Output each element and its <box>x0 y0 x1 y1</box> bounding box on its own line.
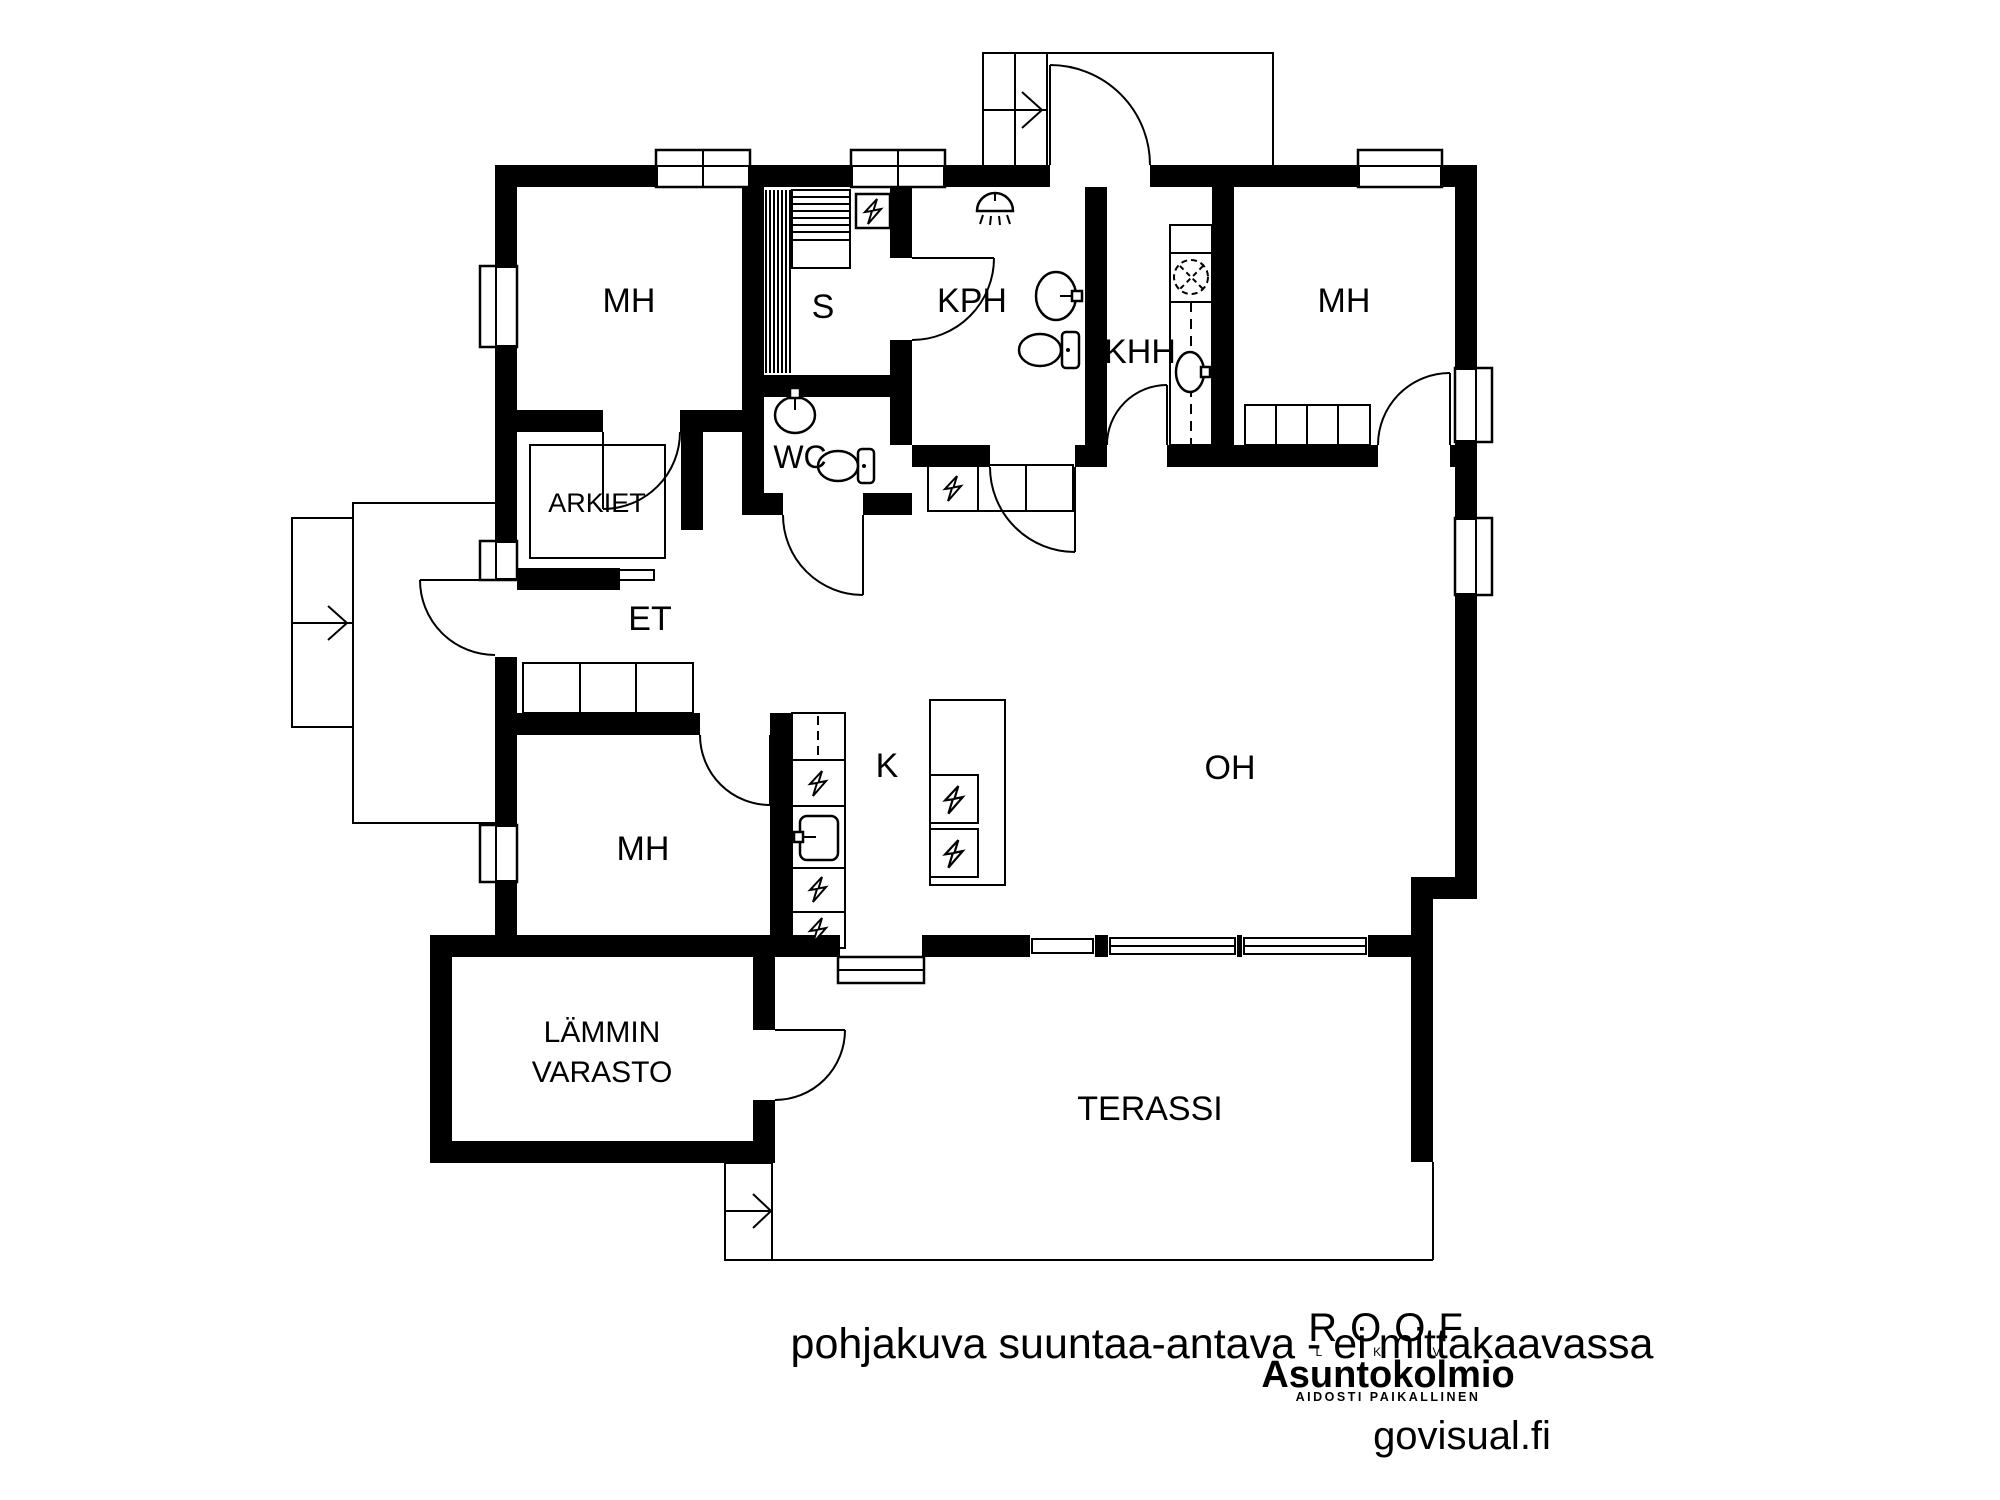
door-kph-hall <box>990 467 1075 552</box>
room-label-mh-bottom-left: MH <box>617 830 670 868</box>
annotations: pohjakuva suuntaa-antava - ei mittakaava… <box>791 1306 1654 1458</box>
toilet-icon <box>1019 332 1079 368</box>
room-label-kph: KPH <box>937 282 1007 320</box>
sauna-benches <box>766 190 890 373</box>
window <box>838 957 924 983</box>
floorplan-drawing: MH S KPH KHH MH ARKIET WC ET MH K OH LÄM… <box>0 0 2000 1500</box>
top-entrance-porch <box>983 53 1273 167</box>
floorplan-page: MH S KPH KHH MH ARKIET WC ET MH K OH LÄM… <box>0 0 2000 1500</box>
disclaimer-text: pohjakuva suuntaa-antava - ei mittakaava… <box>791 1320 1654 1368</box>
room-label-et: ET <box>628 600 671 638</box>
door-left-entrance <box>420 580 495 655</box>
room-label-khh: KHH <box>1104 333 1176 371</box>
room-label-varasto-1: LÄMMIN <box>544 1016 661 1049</box>
room-label-mh-top-right: MH <box>1318 282 1371 320</box>
lightning-icon <box>945 476 961 501</box>
left-entrance-porch <box>292 503 498 823</box>
roof-lkv-logo: ROOF L K V <box>1308 1306 1476 1359</box>
door-mh-top-right <box>1378 373 1450 445</box>
direction-arrow-icon <box>731 1194 771 1228</box>
room-label-k: K <box>876 747 899 785</box>
terrace-outline <box>725 1162 1433 1260</box>
lightning-icon <box>945 840 963 868</box>
sink-icon <box>1036 272 1082 320</box>
kitchen-sink-icon <box>794 816 838 860</box>
lightning-icon <box>810 877 826 902</box>
hall-counter <box>928 465 1073 511</box>
kitchen-island <box>930 700 1005 885</box>
direction-arrow-icon <box>298 606 347 640</box>
room-label-mh-top-left: MH <box>603 282 656 320</box>
electric-panel-icon <box>856 194 890 228</box>
room-label-terassi: TERASSI <box>1077 1090 1222 1128</box>
khh-counter <box>1170 225 1212 445</box>
asuntokolmio-logo: Asuntokolmio AIDOSTI PAIKALLINEN <box>1261 1354 1514 1404</box>
room-label-wc: WC <box>773 439 826 475</box>
mh-wardrobe <box>1245 405 1370 445</box>
room-label-arkiet: ARKIET <box>548 488 646 518</box>
kitchen-fixtures <box>792 700 1005 948</box>
lightning-icon <box>810 771 826 796</box>
et-closets <box>523 663 693 713</box>
shower-icon <box>977 193 1013 225</box>
sink-icon <box>1176 352 1210 392</box>
roof-logo-text: ROOF <box>1308 1306 1476 1350</box>
washing-machine-icon <box>1174 260 1208 294</box>
lightning-icon <box>945 786 963 814</box>
asuntokolmio-tagline: AIDOSTI PAIKALLINEN <box>1296 1390 1481 1404</box>
door-mh-bottom-left <box>700 735 770 805</box>
room-label-oh: OH <box>1205 749 1256 787</box>
door-storage <box>775 1030 845 1100</box>
door-top-entrance <box>1050 65 1150 165</box>
room-label-sauna: S <box>812 288 835 326</box>
door-wc <box>783 515 863 595</box>
watermark-text: govisual.fi <box>1373 1414 1551 1458</box>
door-khh <box>1107 385 1167 445</box>
room-label-varasto-2: VARASTO <box>532 1056 673 1089</box>
